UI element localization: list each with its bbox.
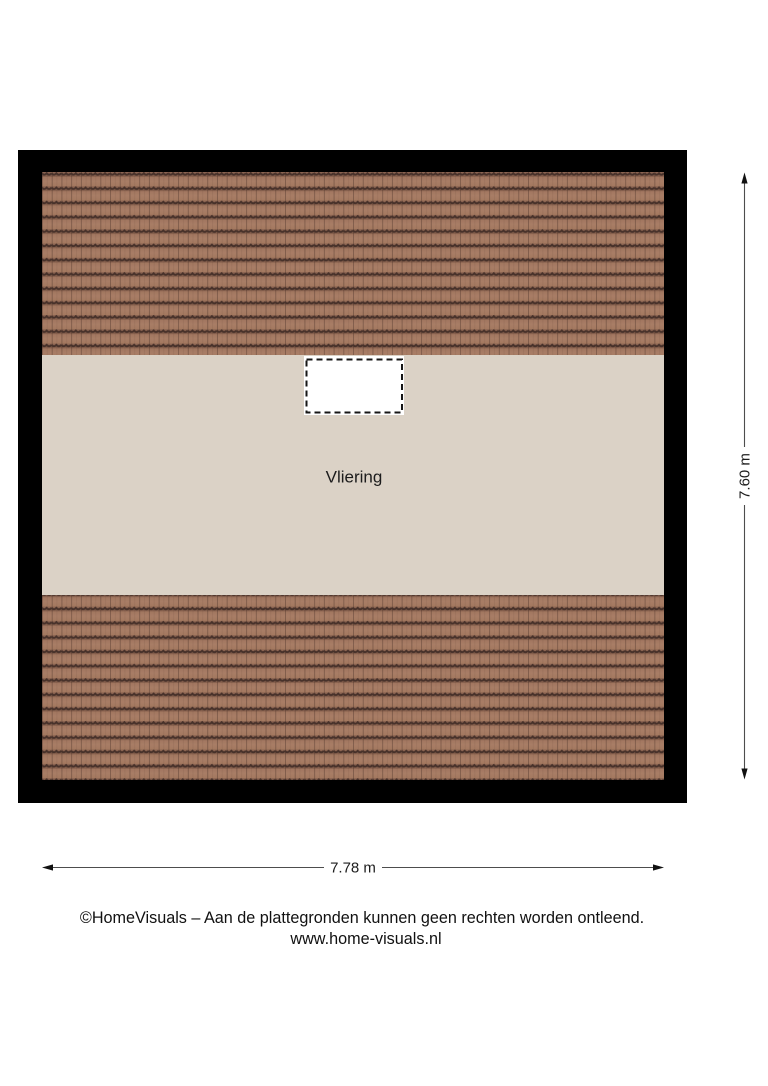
svg-text:7.60 m: 7.60 m	[737, 453, 754, 499]
svg-text:7.78 m: 7.78 m	[330, 860, 376, 877]
svg-text:www.home-visuals.nl: www.home-visuals.nl	[289, 930, 441, 948]
svg-text:Vliering: Vliering	[326, 468, 383, 487]
svg-text:©HomeVisuals – Aan de plattegr: ©HomeVisuals – Aan de plattegronden kunn…	[80, 909, 644, 927]
